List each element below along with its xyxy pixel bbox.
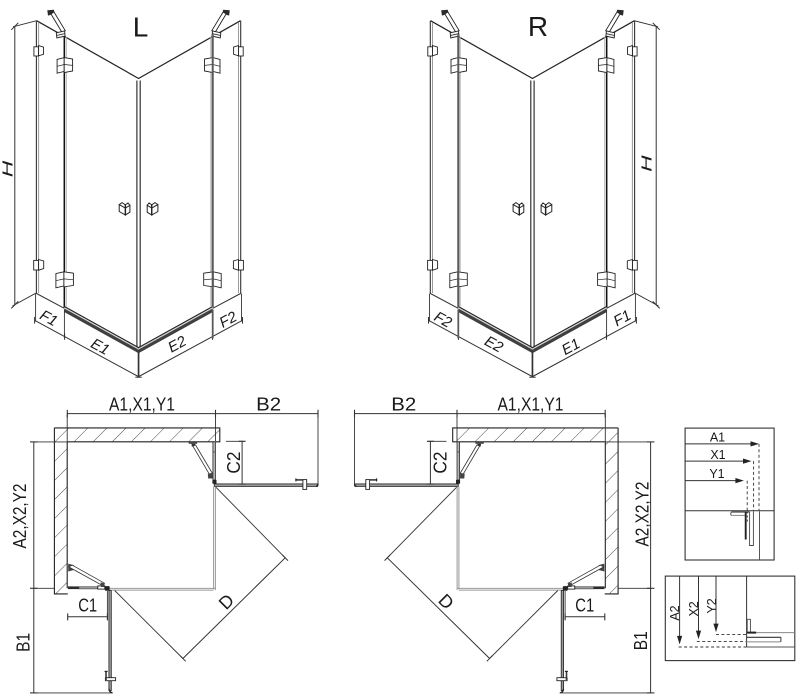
svg-text:A2,X2,Y2: A2,X2,Y2 [10, 484, 30, 549]
svg-text:B1: B1 [14, 633, 34, 652]
svg-text:A2,X2,Y2: A2,X2,Y2 [633, 482, 653, 547]
svg-text:B1: B1 [631, 631, 651, 650]
svg-text:C2: C2 [431, 452, 451, 474]
svg-text:L: L [133, 11, 149, 42]
svg-text:X1: X1 [710, 448, 725, 462]
svg-text:H: H [0, 161, 17, 178]
svg-text:A1,X1,Y1: A1,X1,Y1 [498, 394, 564, 414]
svg-text:Y1: Y1 [709, 467, 724, 481]
svg-text:H: H [638, 155, 655, 172]
svg-text:C1: C1 [575, 596, 594, 616]
svg-text:A1,X1,Y1: A1,X1,Y1 [109, 394, 175, 414]
svg-text:C2: C2 [224, 452, 244, 474]
svg-text:Y2: Y2 [705, 598, 719, 613]
svg-text:X2: X2 [687, 601, 701, 616]
svg-text:B2: B2 [256, 395, 281, 415]
svg-text:A2: A2 [668, 605, 682, 620]
svg-text:B2: B2 [391, 395, 416, 415]
svg-text:R: R [528, 11, 548, 42]
svg-text:C1: C1 [78, 596, 97, 616]
svg-text:A1: A1 [710, 431, 725, 445]
